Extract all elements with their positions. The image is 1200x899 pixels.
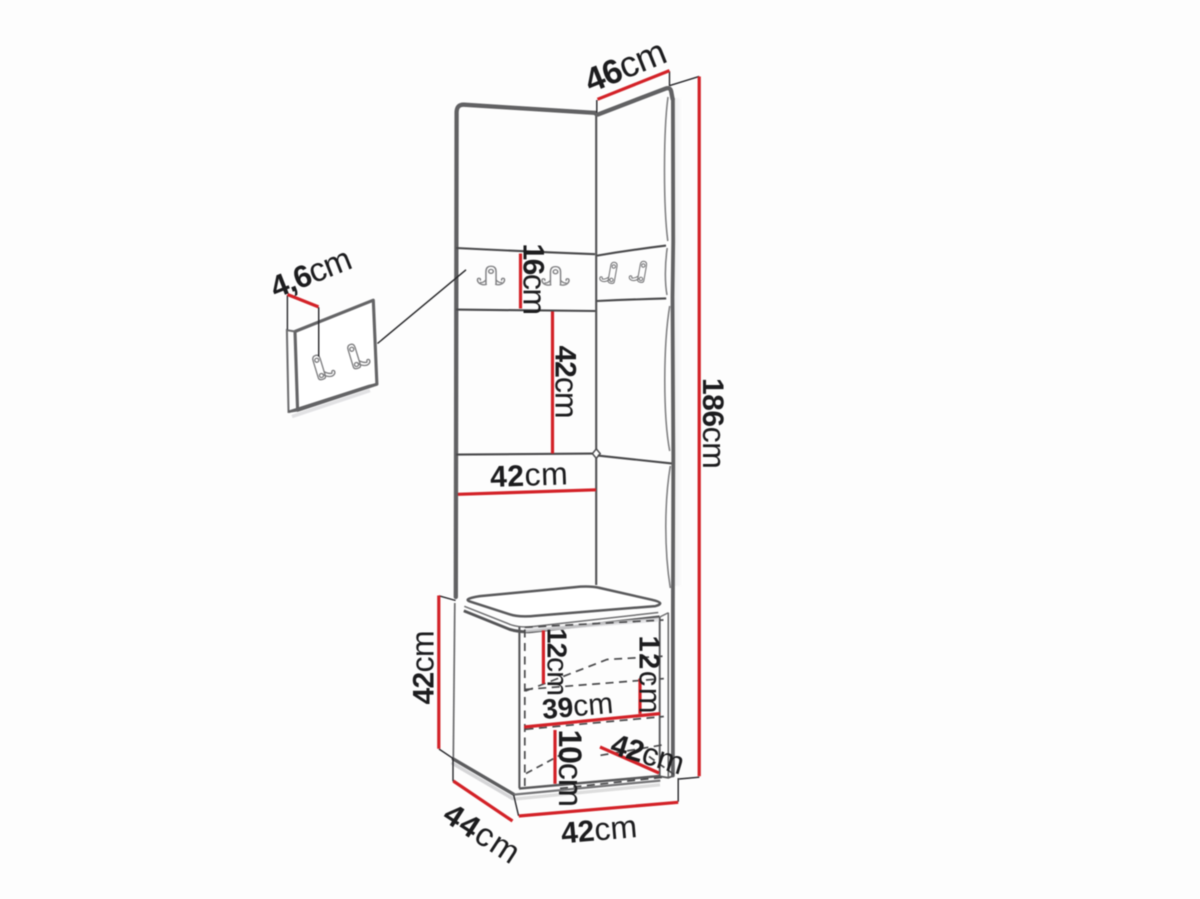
svg-text:16cm: 16cm [516, 244, 552, 314]
svg-text:12cm: 12cm [541, 628, 574, 695]
svg-text:42cm: 42cm [607, 725, 688, 781]
svg-text:42cm: 42cm [559, 808, 638, 850]
svg-text:4,6cm: 4,6cm [265, 241, 357, 306]
svg-text:186cm: 186cm [696, 378, 732, 468]
svg-text:12cm: 12cm [633, 636, 668, 716]
svg-text:42cm: 42cm [405, 631, 441, 704]
svg-text:42cm: 42cm [489, 455, 568, 494]
svg-text:44cm: 44cm [437, 795, 528, 872]
svg-text:42cm: 42cm [548, 346, 584, 418]
svg-text:10cm: 10cm [551, 730, 589, 806]
svg-text:39cm: 39cm [541, 687, 615, 726]
